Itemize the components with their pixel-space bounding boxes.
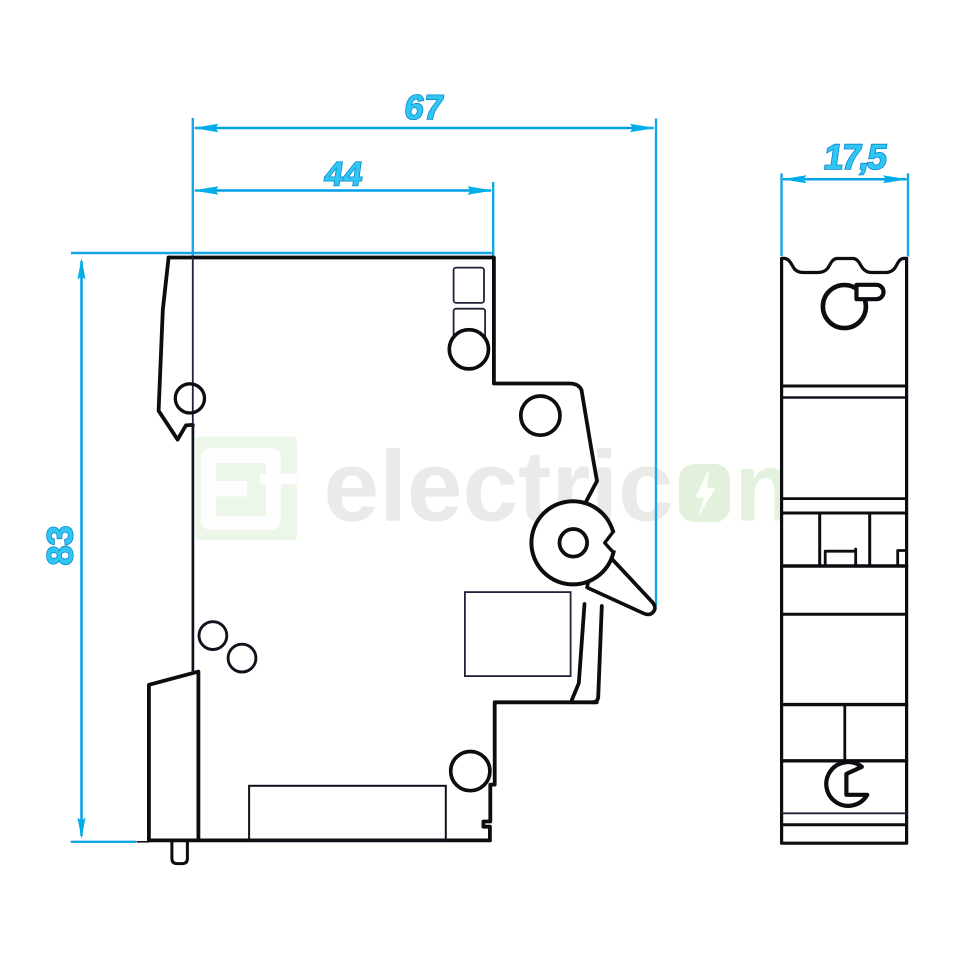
- svg-text:67: 67: [402, 89, 446, 127]
- svg-text:electric: electric: [324, 431, 674, 543]
- svg-text:83: 83: [40, 525, 81, 565]
- svg-text:44: 44: [322, 155, 365, 193]
- svg-text:17,5: 17,5: [821, 137, 889, 177]
